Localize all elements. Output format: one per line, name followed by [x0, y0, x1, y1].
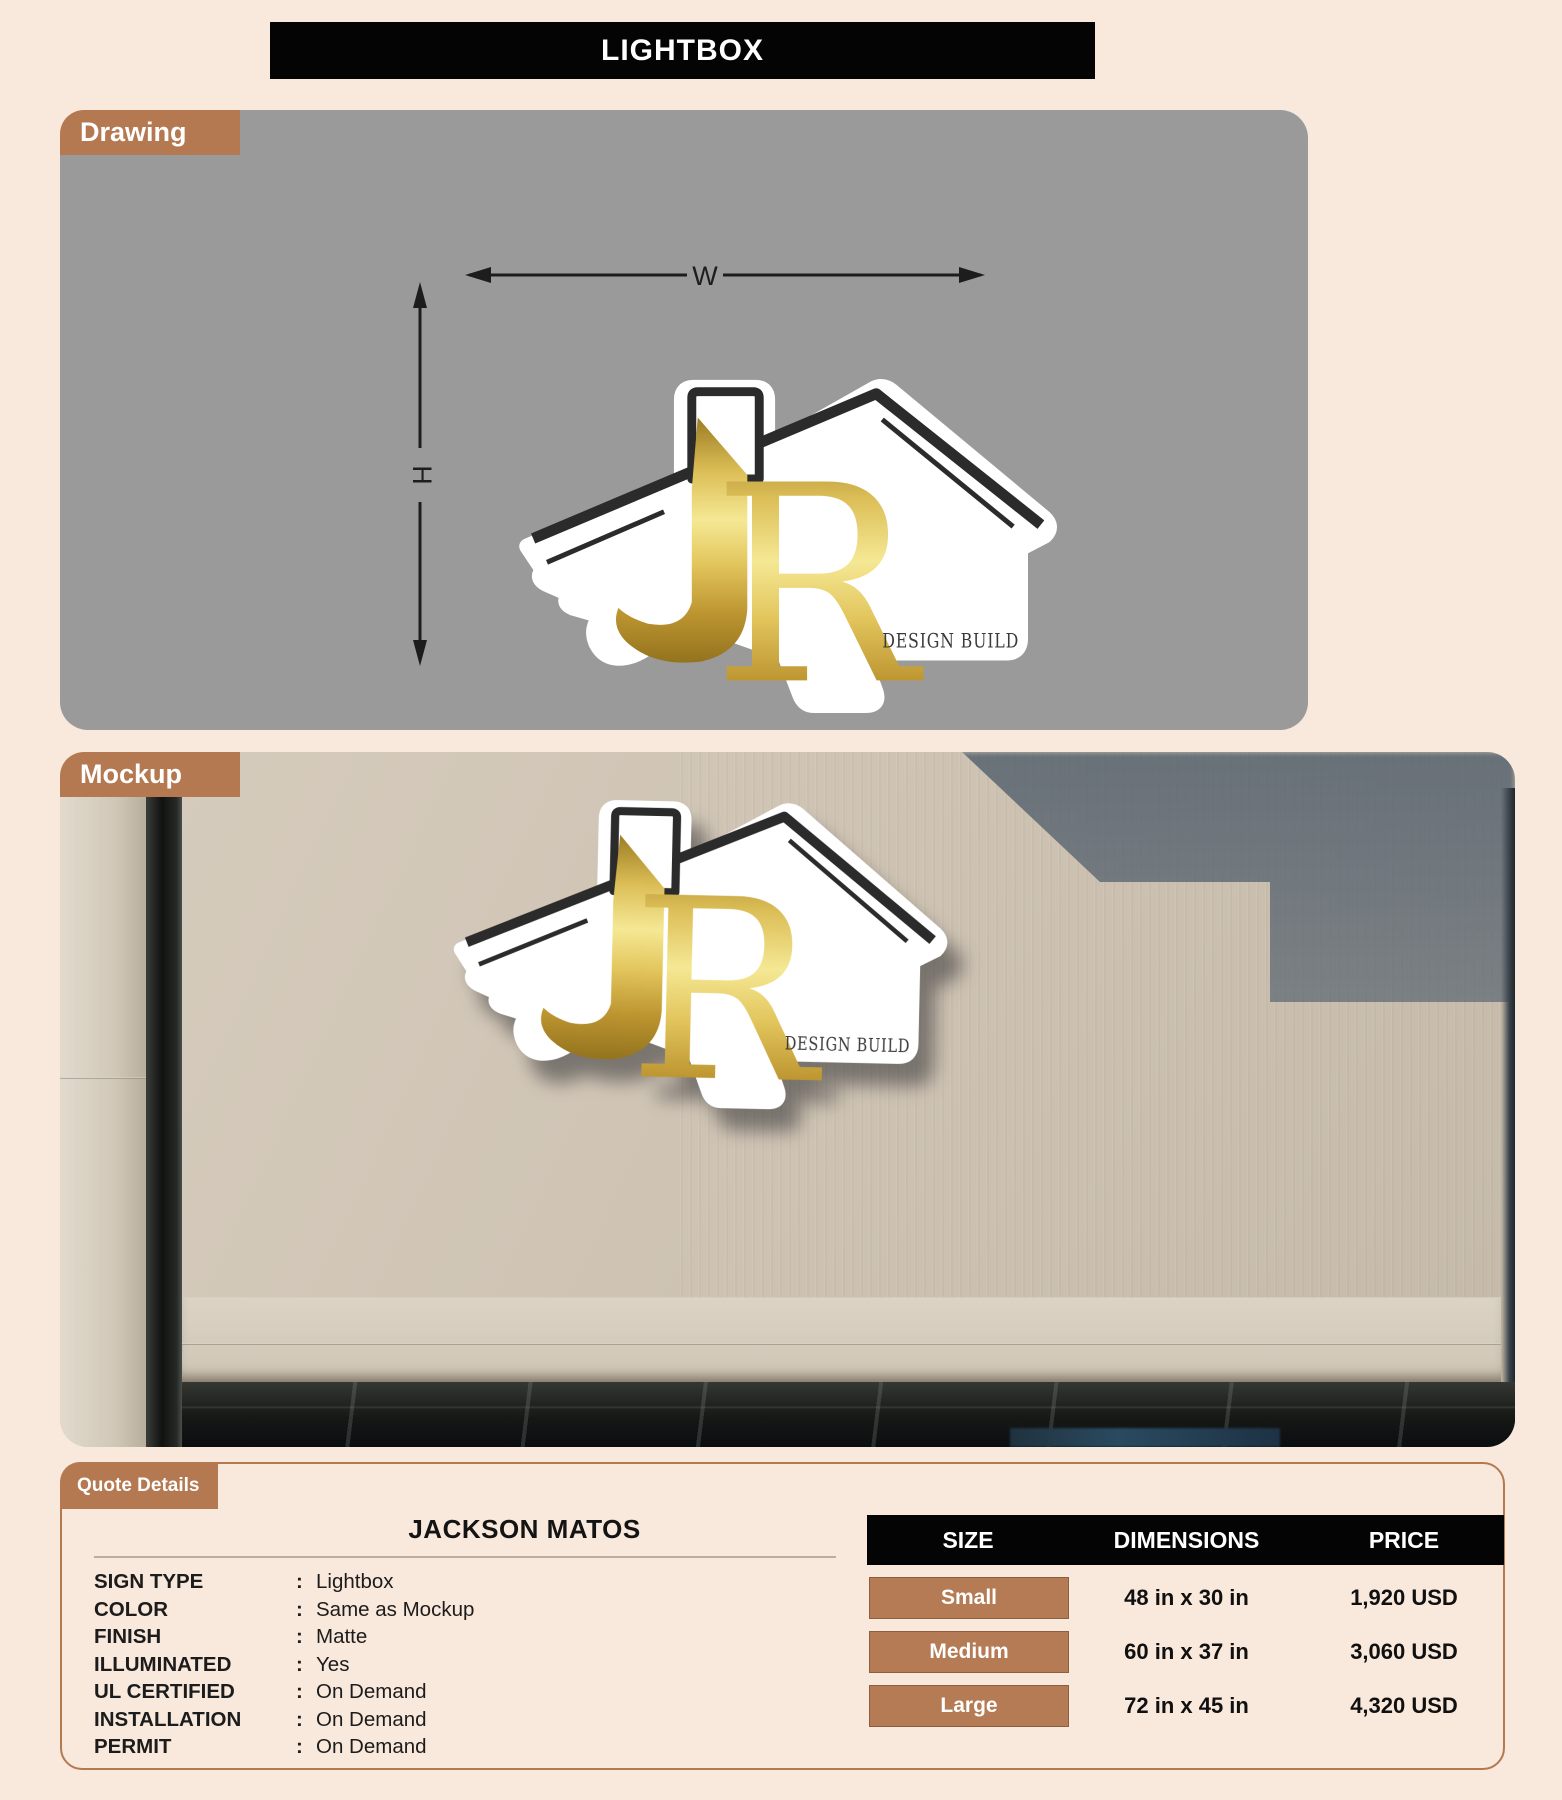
spec-value: Yes	[316, 1651, 349, 1679]
wall-seam-lower	[182, 1343, 1501, 1345]
drawing-logo	[515, 358, 1060, 720]
customer-divider	[94, 1556, 836, 1558]
page-title: LIGHTBOX	[270, 22, 1095, 79]
customer-name: JACKSON MATOS	[152, 1514, 897, 1545]
mockup-tab: Mockup	[60, 752, 240, 797]
pricing-header: SIZE DIMENSIONS PRICE	[867, 1515, 1504, 1565]
fascia-band	[182, 1298, 1501, 1382]
quote-details-tab-label: Quote Details	[77, 1475, 199, 1497]
spec-label: UL CERTIFIED	[94, 1678, 296, 1706]
spec-value: Same as Mockup	[316, 1596, 474, 1624]
spec-row-permit: PERMIT : On Demand	[94, 1733, 474, 1761]
width-dimension-arrow: W	[455, 260, 995, 290]
corner-trim	[146, 752, 182, 1447]
spec-separator: :	[296, 1596, 316, 1624]
height-label: H	[407, 465, 436, 485]
dimensions-cell: 72 in x 45 in	[1069, 1693, 1304, 1719]
storefront-window	[182, 1382, 1515, 1447]
spec-separator: :	[296, 1733, 316, 1761]
spec-label: PERMIT	[94, 1733, 296, 1761]
spec-label: FINISH	[94, 1623, 296, 1651]
mockup-tab-label: Mockup	[80, 759, 182, 790]
storefront-glass-highlight	[1010, 1428, 1280, 1447]
spec-list: SIGN TYPE : Lightbox COLOR : Same as Moc…	[94, 1568, 474, 1761]
pricing-row-medium: Medium 60 in x 37 in 3,060 USD	[867, 1630, 1504, 1673]
price-cell: 3,060 USD	[1304, 1639, 1504, 1665]
mockup-sign	[446, 776, 953, 1119]
size-button-medium[interactable]: Medium	[869, 1631, 1069, 1673]
spec-row-color: COLOR : Same as Mockup	[94, 1596, 474, 1624]
size-button-large[interactable]: Large	[869, 1685, 1069, 1727]
column-size: SIZE	[867, 1527, 1069, 1554]
spec-row-illuminated: ILLUMINATED : Yes	[94, 1651, 474, 1679]
column-price: PRICE	[1304, 1527, 1504, 1554]
pricing-table: SIZE DIMENSIONS PRICE Small 48 in x 30 i…	[867, 1515, 1504, 1727]
drawing-tab-label: Drawing	[80, 117, 187, 148]
quote-sheet: R DESIGN BUILD LIGHTBOX W H	[0, 0, 1562, 1800]
quote-details-tab: Quote Details	[60, 1462, 218, 1509]
mockup-panel	[60, 752, 1515, 1447]
spec-value: On Demand	[316, 1733, 427, 1761]
spec-row-sign-type: SIGN TYPE : Lightbox	[94, 1568, 474, 1596]
quote-panel: JACKSON MATOS SIGN TYPE : Lightbox COLOR…	[60, 1462, 1505, 1770]
spec-label: SIGN TYPE	[94, 1568, 296, 1596]
spec-row-ul-certified: UL CERTIFIED : On Demand	[94, 1678, 474, 1706]
spec-row-installation: INSTALLATION : On Demand	[94, 1706, 474, 1734]
spec-value: On Demand	[316, 1706, 427, 1734]
height-dimension-arrow: H	[404, 278, 436, 670]
spec-value: Lightbox	[316, 1568, 394, 1596]
drawing-tab: Drawing	[60, 110, 240, 155]
drawing-panel: W H	[60, 110, 1308, 730]
building-pillar	[60, 752, 146, 1447]
spec-label: COLOR	[94, 1596, 296, 1624]
spec-value: On Demand	[316, 1678, 427, 1706]
dimensions-cell: 60 in x 37 in	[1069, 1639, 1304, 1665]
page-title-text: LIGHTBOX	[601, 34, 764, 68]
building-right-edge	[1501, 788, 1515, 1447]
price-cell: 1,920 USD	[1304, 1585, 1504, 1611]
size-button-small[interactable]: Small	[869, 1577, 1069, 1619]
spec-separator: :	[296, 1623, 316, 1651]
dimensions-cell: 48 in x 30 in	[1069, 1585, 1304, 1611]
spec-label: ILLUMINATED	[94, 1651, 296, 1679]
spec-value: Matte	[316, 1623, 367, 1651]
spec-separator: :	[296, 1651, 316, 1679]
column-dimensions: DIMENSIONS	[1069, 1527, 1304, 1554]
price-cell: 4,320 USD	[1304, 1693, 1504, 1719]
pricing-row-large: Large 72 in x 45 in 4,320 USD	[867, 1684, 1504, 1727]
spec-separator: :	[296, 1706, 316, 1734]
spec-row-finish: FINISH : Matte	[94, 1623, 474, 1651]
spec-separator: :	[296, 1568, 316, 1596]
pricing-row-small: Small 48 in x 30 in 1,920 USD	[867, 1576, 1504, 1619]
spec-separator: :	[296, 1678, 316, 1706]
width-label: W	[692, 261, 718, 290]
spec-label: INSTALLATION	[94, 1706, 296, 1734]
pillar-seam	[60, 1077, 146, 1079]
